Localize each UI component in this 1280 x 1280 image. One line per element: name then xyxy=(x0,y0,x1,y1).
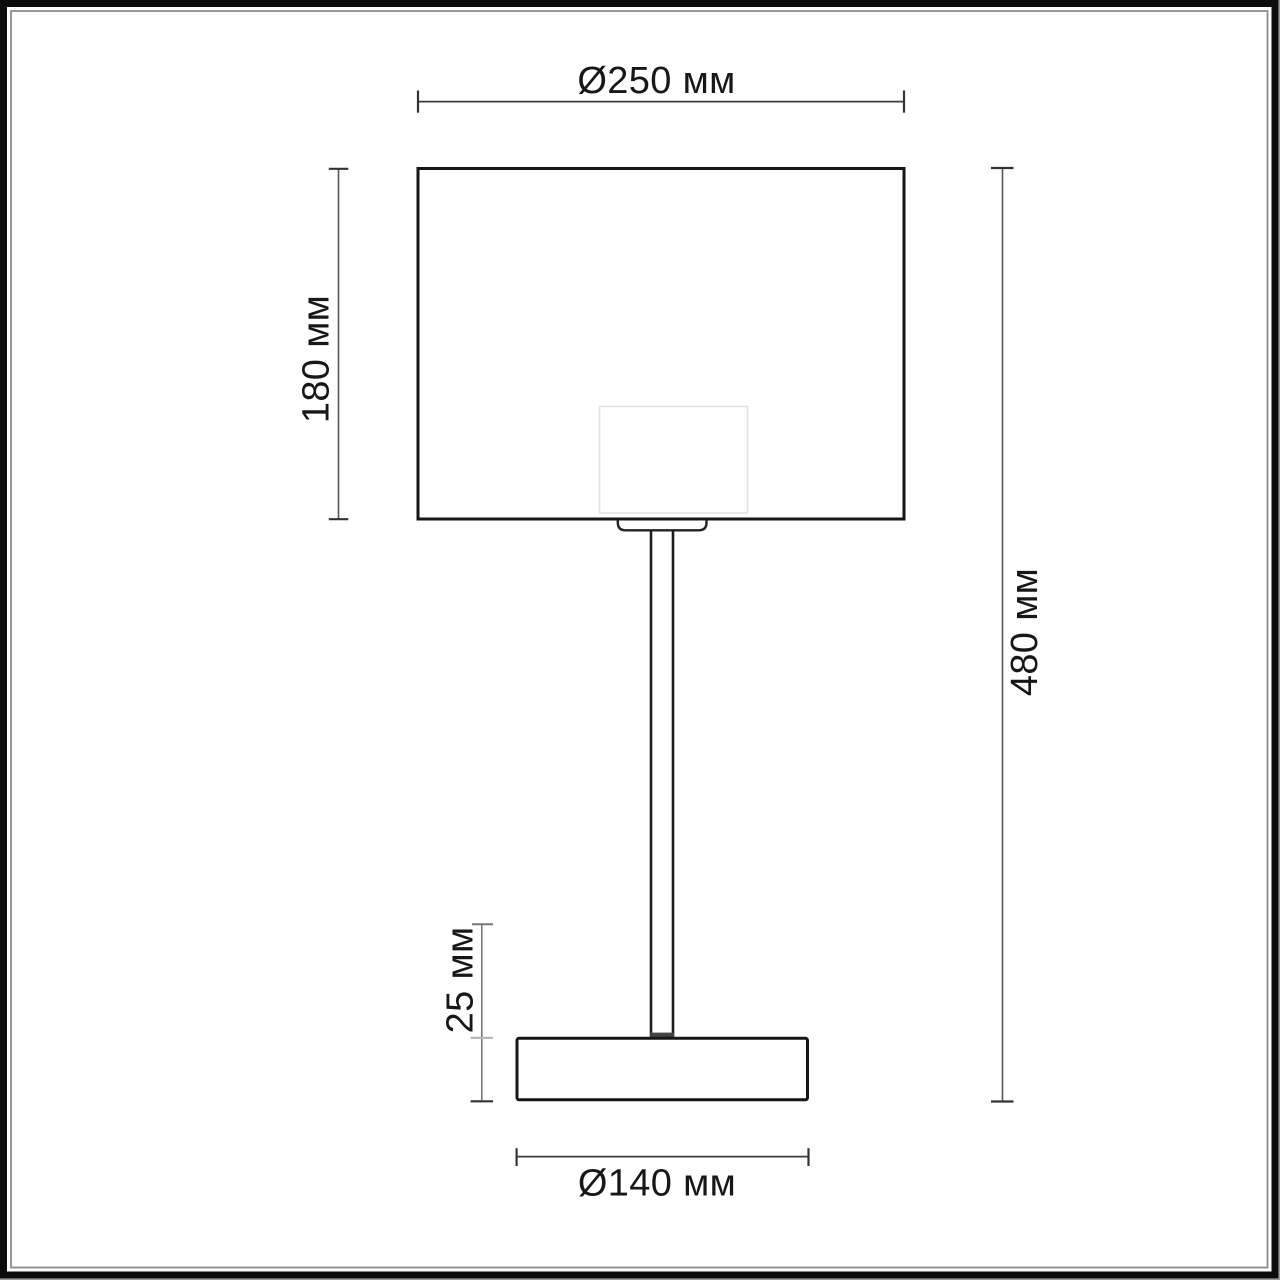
svg-text:Ø250 мм: Ø250 мм xyxy=(577,60,735,102)
svg-text:Ø140 мм: Ø140 мм xyxy=(578,1162,736,1204)
svg-text:180 мм: 180 мм xyxy=(296,295,338,423)
svg-text:25 мм: 25 мм xyxy=(439,927,481,1034)
svg-text:480 мм: 480 мм xyxy=(1004,568,1046,696)
